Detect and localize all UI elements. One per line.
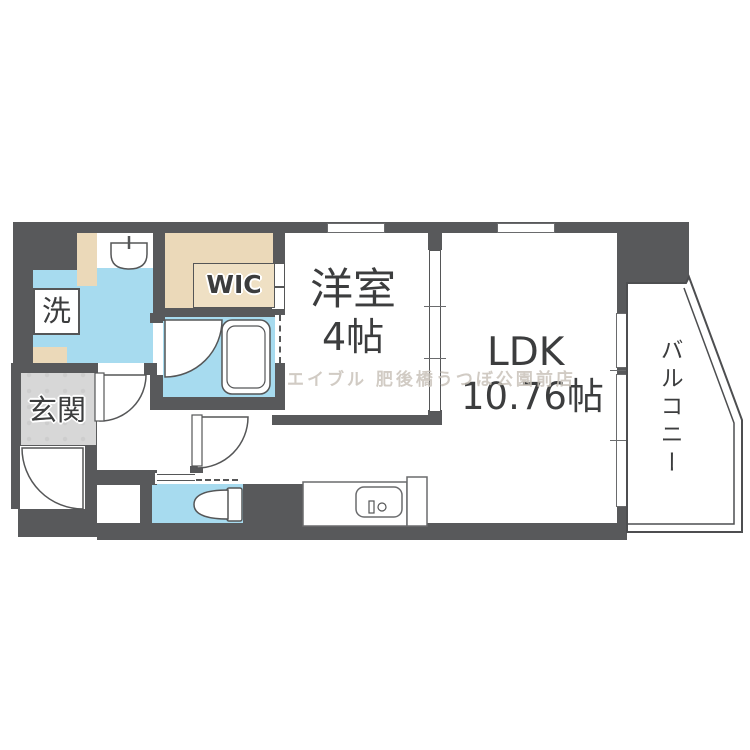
western-room-label: 洋室 [310,268,396,313]
kitchen-sink-icon [356,487,402,517]
wic-label: WIC [206,272,261,298]
washroom-door-arc [100,375,146,421]
hall-door-leaf [192,415,202,466]
bathroom-door-arc [165,320,222,377]
toilet-icon [194,490,228,519]
watermark: エイブル 肥後橋うつぼ公園前店 [287,365,576,390]
western-room-size: 4帖 [322,318,384,358]
washroom-door-leaf [95,373,104,421]
entrance-door-arc [22,448,83,509]
entrance-label: 玄関 [28,395,86,425]
hall-door-arc [197,417,248,468]
wic-label-box: WIC [193,263,275,308]
laundry-label: 洗 [42,296,71,326]
floor-plan: WIC 洗 洋室 4帖 LDK 10.76帖 玄関 バルコニー エイブル 肥後橋… [0,0,750,750]
sink-drain [378,503,386,511]
laundry-box: 洗 [33,288,80,335]
toilet-tank [227,488,242,521]
bathtub-icon [222,320,270,394]
balcony-outline [627,277,742,532]
kitchen-counter-end [407,477,427,526]
sink-faucet [369,501,374,513]
balcony-label: バルコニー [657,338,681,478]
